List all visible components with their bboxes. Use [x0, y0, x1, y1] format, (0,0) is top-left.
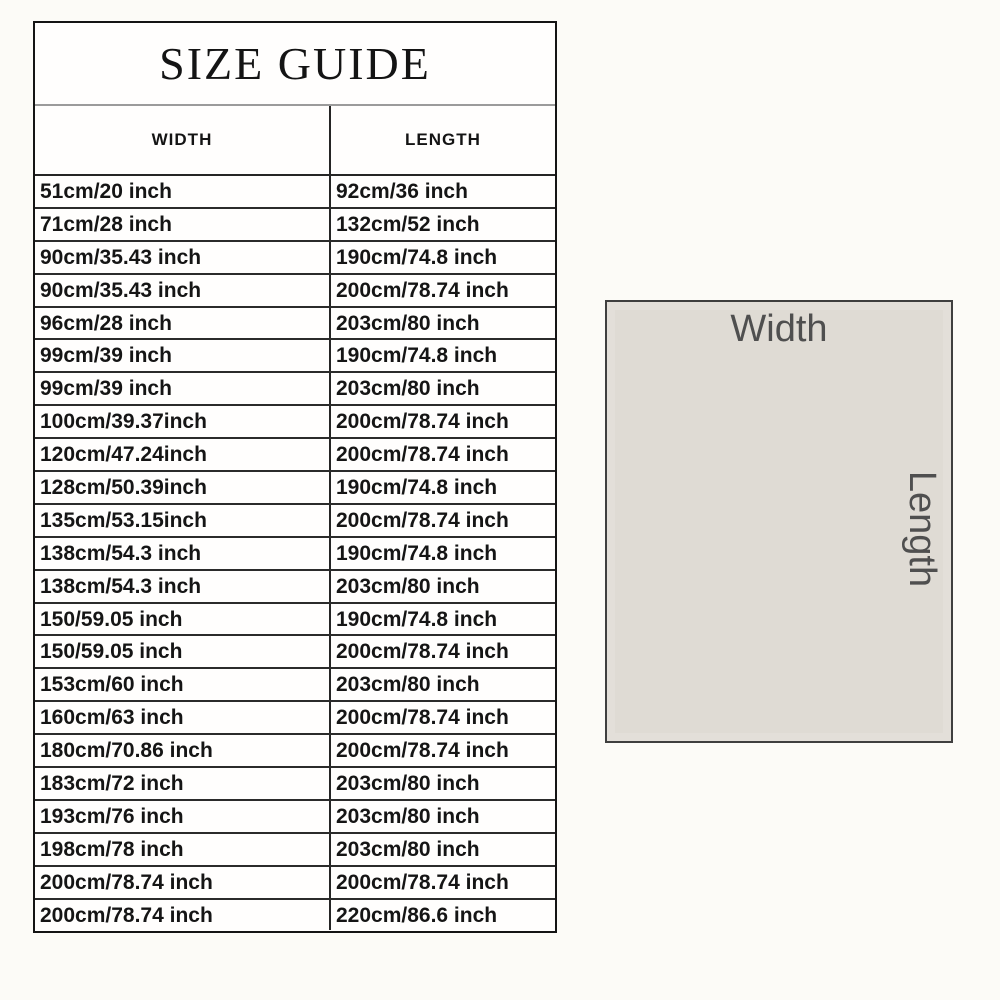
length-cell: 200cm/78.74 inch — [330, 504, 555, 537]
size-guide-title: SIZE GUIDE — [35, 23, 555, 106]
width-cell: 96cm/28 inch — [35, 307, 330, 340]
table-row: 150/59.05 inch190cm/74.8 inch — [35, 603, 555, 636]
size-guide-table: SIZE GUIDE WIDTH LENGTH 51cm/20 inch92cm… — [33, 21, 557, 933]
length-cell: 203cm/80 inch — [330, 668, 555, 701]
width-cell: 99cm/39 inch — [35, 339, 330, 372]
length-cell: 200cm/78.74 inch — [330, 701, 555, 734]
width-cell: 138cm/54.3 inch — [35, 537, 330, 570]
width-cell: 200cm/78.74 inch — [35, 899, 330, 931]
table-row: 200cm/78.74 inch220cm/86.6 inch — [35, 899, 555, 931]
table-row: 99cm/39 inch190cm/74.8 inch — [35, 339, 555, 372]
table-row: 200cm/78.74 inch200cm/78.74 inch — [35, 866, 555, 899]
table-row: 135cm/53.15inch200cm/78.74 inch — [35, 504, 555, 537]
width-cell: 193cm/76 inch — [35, 800, 330, 833]
length-cell: 203cm/80 inch — [330, 570, 555, 603]
table-row: 128cm/50.39inch190cm/74.8 inch — [35, 471, 555, 504]
length-cell: 190cm/74.8 inch — [330, 471, 555, 504]
table-row: 96cm/28 inch203cm/80 inch — [35, 307, 555, 340]
table-row: 193cm/76 inch203cm/80 inch — [35, 800, 555, 833]
table-row: 99cm/39 inch203cm/80 inch — [35, 372, 555, 405]
width-column-header: WIDTH — [35, 106, 330, 175]
diagram-length-label: Length — [901, 459, 943, 599]
width-cell: 128cm/50.39inch — [35, 471, 330, 504]
size-table: WIDTH LENGTH 51cm/20 inch92cm/36 inch71c… — [35, 106, 555, 930]
header-row: WIDTH LENGTH — [35, 106, 555, 175]
length-cell: 200cm/78.74 inch — [330, 438, 555, 471]
width-cell: 138cm/54.3 inch — [35, 570, 330, 603]
length-cell: 200cm/78.74 inch — [330, 734, 555, 767]
length-cell: 200cm/78.74 inch — [330, 635, 555, 668]
width-cell: 153cm/60 inch — [35, 668, 330, 701]
length-cell: 200cm/78.74 inch — [330, 274, 555, 307]
length-cell: 203cm/80 inch — [330, 307, 555, 340]
width-cell: 180cm/70.86 inch — [35, 734, 330, 767]
width-cell: 51cm/20 inch — [35, 175, 330, 208]
width-cell: 198cm/78 inch — [35, 833, 330, 866]
length-cell: 203cm/80 inch — [330, 833, 555, 866]
table-row: 160cm/63 inch200cm/78.74 inch — [35, 701, 555, 734]
width-cell: 160cm/63 inch — [35, 701, 330, 734]
length-cell: 132cm/52 inch — [330, 208, 555, 241]
width-cell: 90cm/35.43 inch — [35, 241, 330, 274]
width-cell: 120cm/47.24inch — [35, 438, 330, 471]
diagram-width-label: Width — [607, 308, 951, 351]
table-row: 150/59.05 inch200cm/78.74 inch — [35, 635, 555, 668]
length-cell: 203cm/80 inch — [330, 767, 555, 800]
width-cell: 100cm/39.37inch — [35, 405, 330, 438]
length-cell: 203cm/80 inch — [330, 800, 555, 833]
table-row: 71cm/28 inch132cm/52 inch — [35, 208, 555, 241]
length-cell: 220cm/86.6 inch — [330, 899, 555, 931]
table-row: 138cm/54.3 inch190cm/74.8 inch — [35, 537, 555, 570]
table-row: 90cm/35.43 inch200cm/78.74 inch — [35, 274, 555, 307]
table-row: 120cm/47.24inch200cm/78.74 inch — [35, 438, 555, 471]
length-cell: 203cm/80 inch — [330, 372, 555, 405]
table-row: 153cm/60 inch203cm/80 inch — [35, 668, 555, 701]
dimension-diagram: Width Length — [605, 300, 953, 743]
size-table-body: 51cm/20 inch92cm/36 inch71cm/28 inch132c… — [35, 175, 555, 930]
table-row: 183cm/72 inch203cm/80 inch — [35, 767, 555, 800]
table-row: 100cm/39.37inch200cm/78.74 inch — [35, 405, 555, 438]
table-row: 90cm/35.43 inch190cm/74.8 inch — [35, 241, 555, 274]
width-cell: 99cm/39 inch — [35, 372, 330, 405]
length-cell: 190cm/74.8 inch — [330, 339, 555, 372]
length-column-header: LENGTH — [330, 106, 555, 175]
table-row: 138cm/54.3 inch203cm/80 inch — [35, 570, 555, 603]
width-cell: 183cm/72 inch — [35, 767, 330, 800]
width-cell: 150/59.05 inch — [35, 603, 330, 636]
length-cell: 190cm/74.8 inch — [330, 537, 555, 570]
length-cell: 92cm/36 inch — [330, 175, 555, 208]
width-cell: 200cm/78.74 inch — [35, 866, 330, 899]
length-cell: 200cm/78.74 inch — [330, 866, 555, 899]
table-row: 51cm/20 inch92cm/36 inch — [35, 175, 555, 208]
table-row: 180cm/70.86 inch200cm/78.74 inch — [35, 734, 555, 767]
table-row: 198cm/78 inch203cm/80 inch — [35, 833, 555, 866]
length-cell: 200cm/78.74 inch — [330, 405, 555, 438]
width-cell: 135cm/53.15inch — [35, 504, 330, 537]
width-cell: 71cm/28 inch — [35, 208, 330, 241]
width-cell: 90cm/35.43 inch — [35, 274, 330, 307]
width-cell: 150/59.05 inch — [35, 635, 330, 668]
length-cell: 190cm/74.8 inch — [330, 241, 555, 274]
length-cell: 190cm/74.8 inch — [330, 603, 555, 636]
